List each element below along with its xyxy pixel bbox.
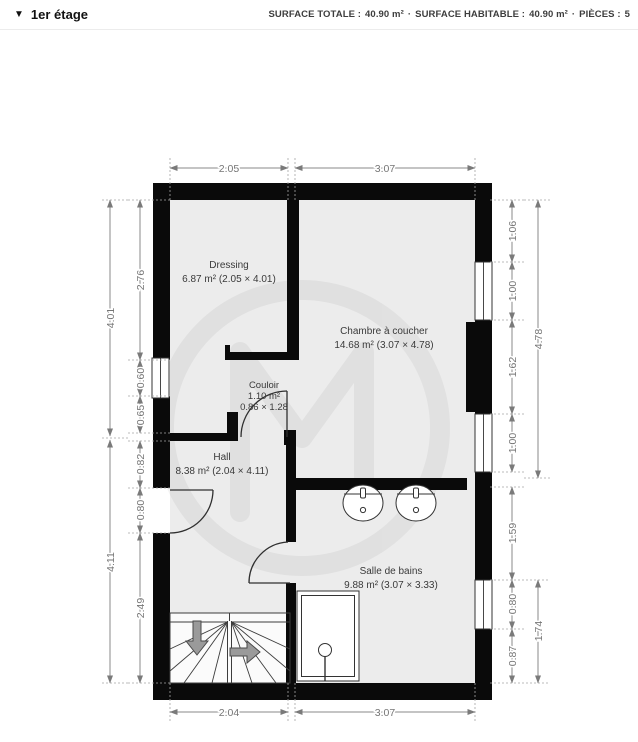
- room-couloir-dims: 0.86 × 1.28: [240, 402, 288, 413]
- pieces-value: 5: [625, 9, 630, 20]
- room-dressing-area: 6.87 m² (2.05 × 4.01): [182, 274, 276, 285]
- pieces-label: PIÈCES :: [579, 9, 620, 20]
- wall-left-mid: [153, 396, 170, 488]
- stat-separator: ·: [572, 9, 575, 20]
- dim-top-1: 2.05: [219, 163, 240, 175]
- wall-hall-divider-upper: [286, 445, 296, 542]
- room-hall-name: Hall: [213, 452, 230, 463]
- floor-toggle[interactable]: ▼ 1er étage: [14, 7, 88, 22]
- wall-tick: [225, 345, 230, 360]
- wall-right-4: [475, 629, 492, 700]
- dim-right-inner-1: 1.06: [507, 221, 519, 242]
- surface-habitable-label: SURFACE HABITABLE :: [415, 9, 525, 20]
- surface-totale-value: 40.90 m²: [365, 9, 404, 20]
- dim-right-inner-5: 1.59: [507, 523, 519, 544]
- window-left: [152, 358, 169, 398]
- wall-right-1: [475, 183, 492, 262]
- floor-header: ▼ 1er étage SURFACE TOTALE : 40.90 m² · …: [0, 0, 638, 30]
- wall-right-2: [475, 320, 492, 414]
- room-dressing-name: Dressing: [209, 260, 248, 271]
- dim-right-outer-2: 1.74: [533, 621, 545, 642]
- dim-bottom-1: 2.04: [219, 707, 240, 719]
- dim-left-inner-1: 2.76: [135, 270, 147, 291]
- wall-dressing-hall: [170, 433, 227, 441]
- collapse-triangle-icon: ▼: [14, 10, 24, 20]
- shower-icon: [297, 591, 359, 681]
- dim-left-inner-2: 0.60: [135, 368, 147, 389]
- dim-left-outer-1: 4.01: [105, 308, 117, 329]
- dim-right-inner-4: 1.00: [507, 433, 519, 454]
- room-hall-area: 8.38 m² (2.04 × 4.11): [176, 466, 269, 477]
- dim-right-inner-6: 0.80: [507, 594, 519, 615]
- window-right-top: [475, 262, 492, 320]
- wall-hall-divider-lower: [286, 583, 296, 683]
- window-right-mid: [475, 414, 492, 472]
- surface-habitable-value: 40.90 m²: [529, 9, 568, 20]
- wall-top: [153, 183, 492, 200]
- dim-left-inner-4: 0.82: [135, 454, 147, 475]
- room-couloir-name: Couloir: [249, 380, 279, 391]
- dim-right-inner-3: 1.62: [507, 357, 519, 378]
- window-right-bath: [475, 580, 492, 629]
- surface-stats: SURFACE TOTALE : 40.90 m² · SURFACE HABI…: [268, 9, 630, 20]
- dim-left-inner-3: 0.65: [135, 405, 147, 426]
- room-sdb-area: 9.88 m² (3.07 × 3.33): [344, 580, 438, 591]
- wall-couloir-se-stub: [284, 430, 296, 445]
- dim-top-2: 3.07: [375, 163, 396, 175]
- wall-bottom: [153, 683, 492, 700]
- dim-right-outer-1: 4.78: [533, 329, 545, 350]
- wall-chambre-sdb: [296, 478, 467, 490]
- wall-left-upper: [153, 183, 170, 360]
- room-chambre-name: Chambre à coucher: [340, 326, 428, 337]
- dim-left-outer-2: 4.11: [105, 552, 117, 572]
- surface-totale-label: SURFACE TOTALE :: [268, 9, 361, 20]
- wall-couloir-west-stub: [227, 412, 238, 441]
- dim-right-inner-2: 1.00: [507, 281, 519, 302]
- wall-right-pier: [466, 322, 475, 412]
- floorplan-canvas: 2.05 3.07 2.04 3.07 4.01 4.11 2.76 0.60 …: [0, 0, 638, 742]
- room-couloir-area: 1.10 m²: [248, 391, 280, 402]
- wall-left-lower: [153, 533, 170, 700]
- dim-left-inner-5: 0.80: [135, 500, 147, 521]
- floor-title: 1er étage: [31, 7, 88, 22]
- wall-dressing-chambre: [287, 200, 299, 352]
- washbasin-icon: [343, 485, 383, 521]
- dim-left-inner-6: 2.49: [135, 598, 147, 619]
- room-sdb-name: Salle de bains: [360, 566, 423, 577]
- stat-separator: ·: [408, 9, 411, 20]
- wall-right-3: [475, 472, 492, 580]
- room-chambre-area: 14.68 m² (3.07 × 4.78): [334, 340, 433, 351]
- wall-dressing-couloir: [225, 352, 299, 360]
- dim-bottom-2: 3.07: [375, 707, 396, 719]
- washbasin-icon: [396, 485, 436, 521]
- dim-right-inner-7: 0.87: [507, 646, 519, 667]
